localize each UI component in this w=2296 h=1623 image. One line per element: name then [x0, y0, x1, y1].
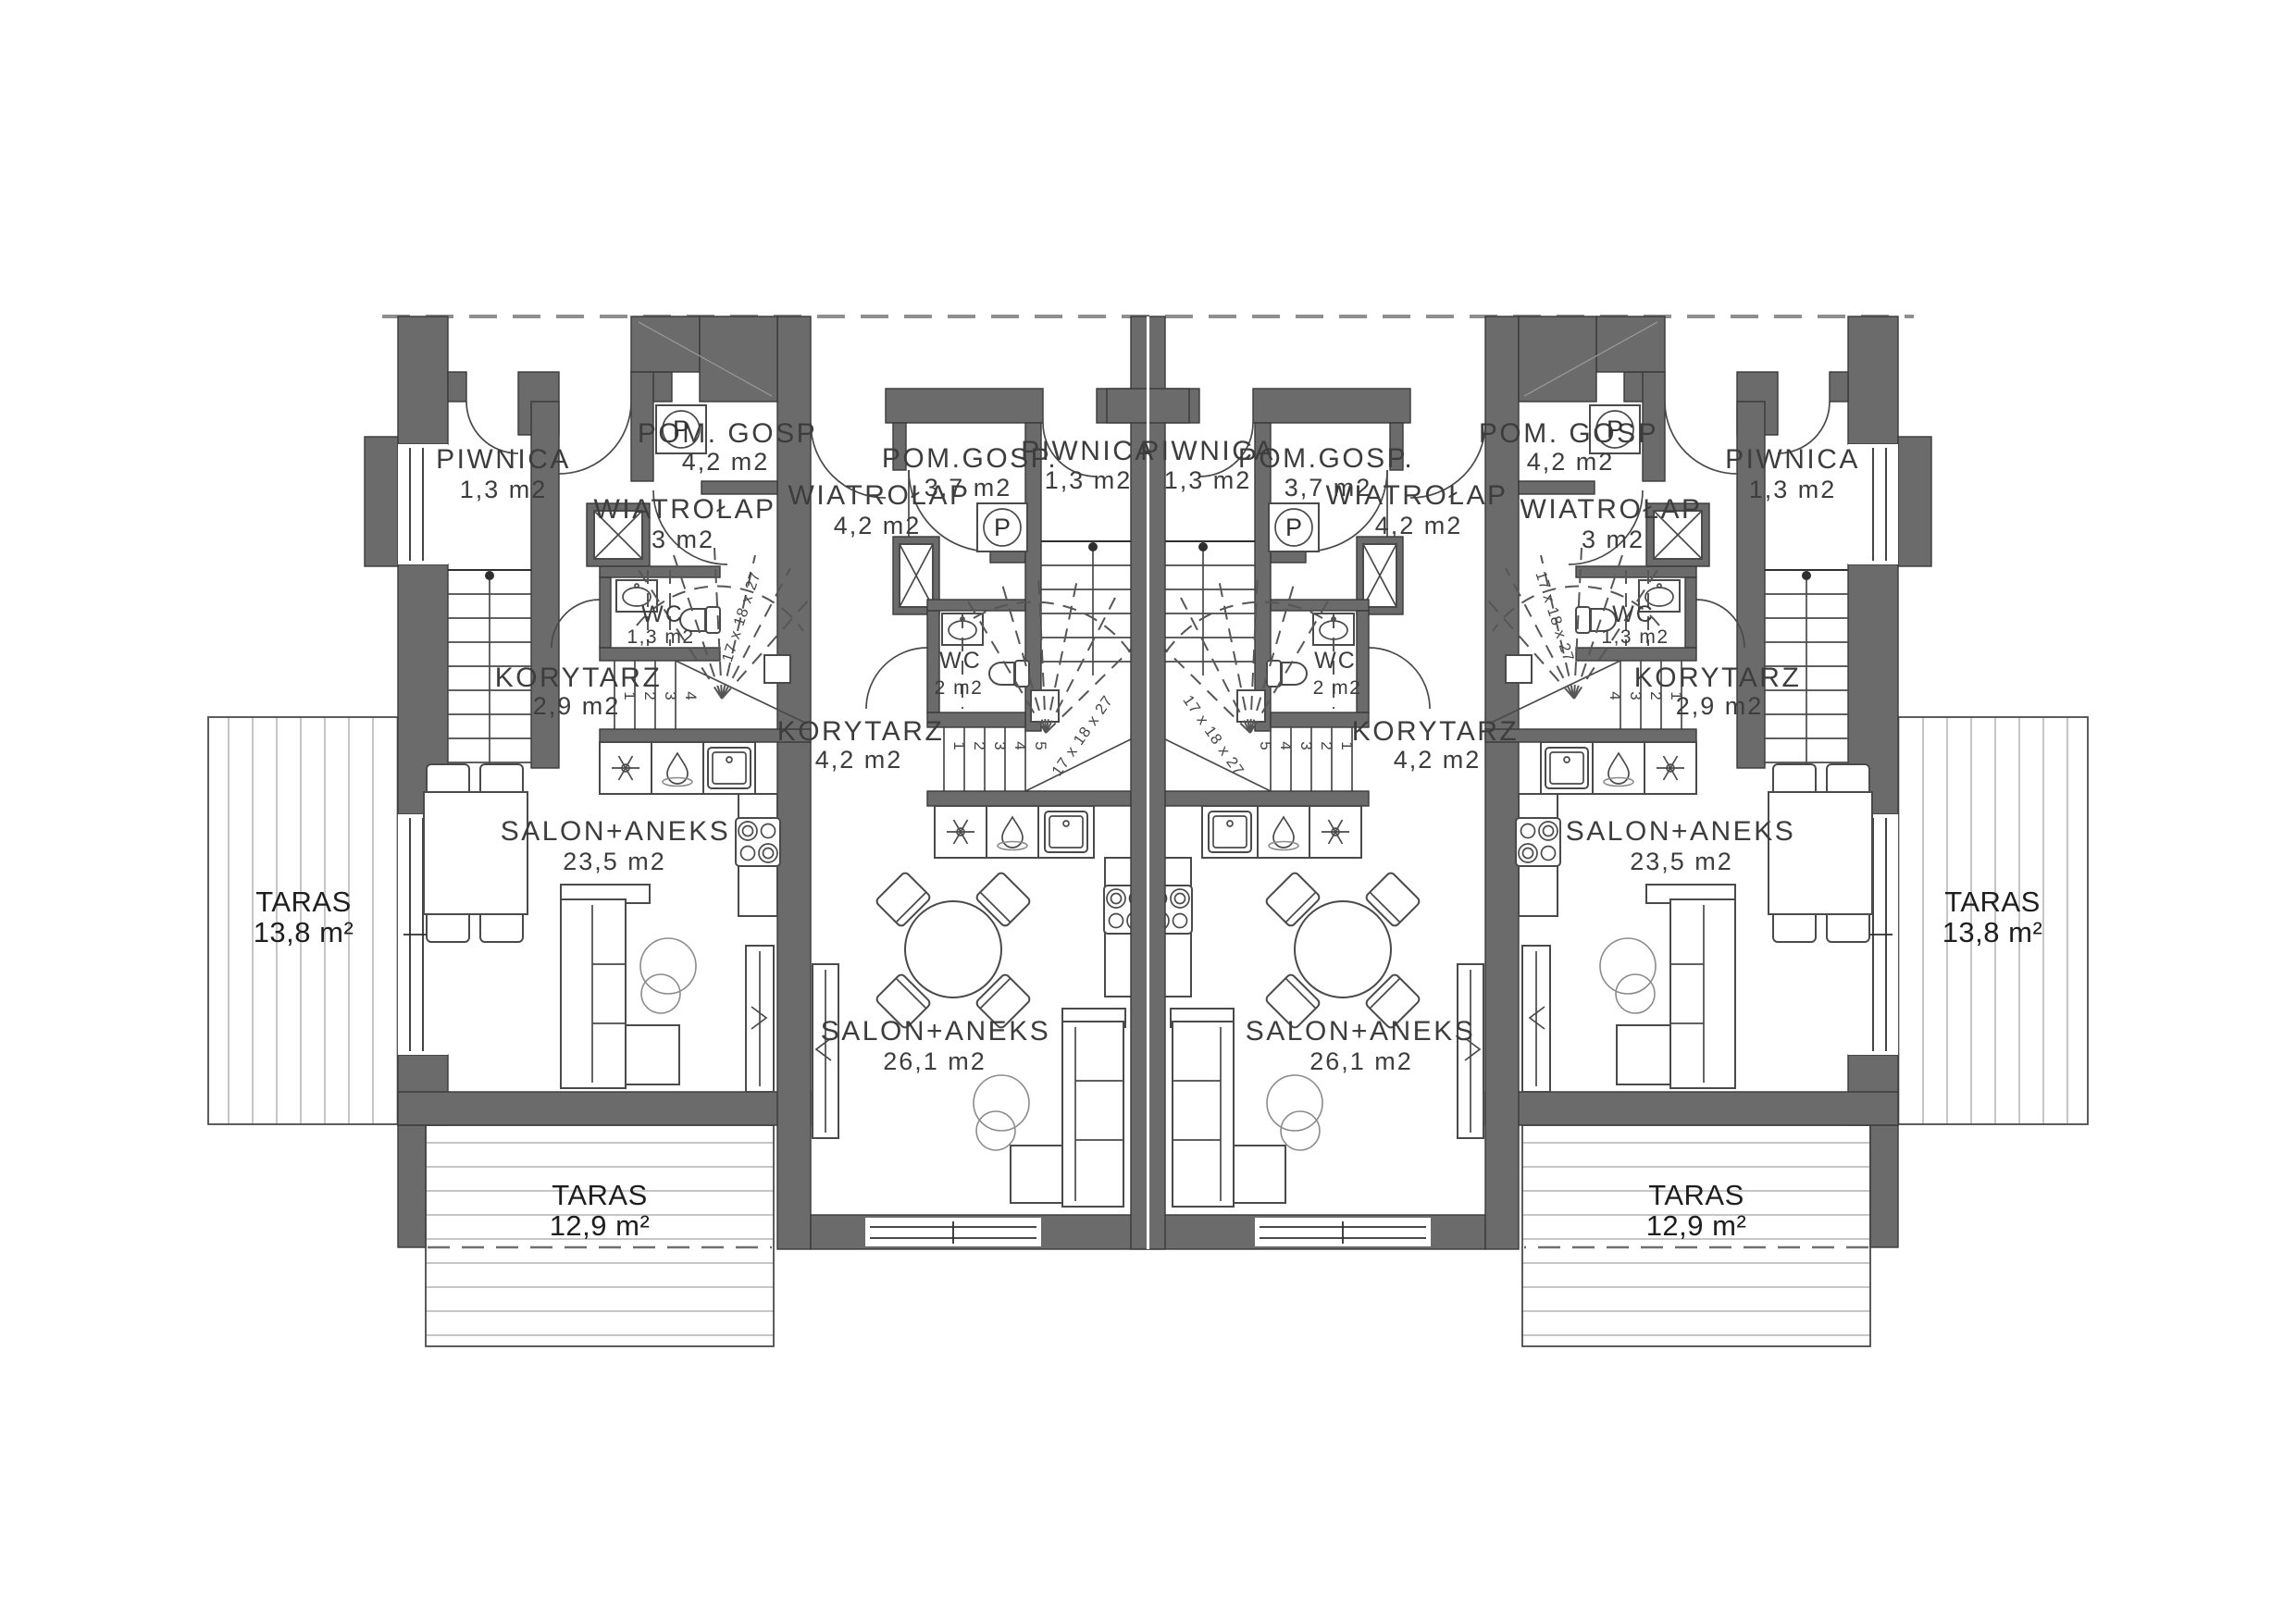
- u2-piwnica-area: 1,3 m2: [1045, 466, 1133, 494]
- u3-pomgosp-area: 3,7 m2: [1285, 474, 1372, 502]
- u2-piwnica-name: PIWNICA: [1021, 436, 1156, 466]
- u1-pomgosp-name: POM. GOSP: [638, 418, 817, 449]
- u4-step-1: 1: [1668, 691, 1685, 700]
- u4-wc-name: WC: [1612, 601, 1655, 627]
- u3-step-4: 4: [1277, 741, 1295, 750]
- u1-washer-label: P: [673, 415, 689, 443]
- u1-wiatrolap-name: WIATROŁAP: [594, 494, 776, 525]
- u1-salon-name: SALON+ANEKS: [501, 816, 730, 847]
- u4-wc-area: 1,3 m2: [1601, 626, 1669, 648]
- u2-wiatrolap-area: 4,2 m2: [834, 512, 922, 539]
- u1-korytarz-area: 2,9 m2: [533, 692, 621, 720]
- u3-step-5: 5: [1257, 741, 1274, 750]
- u2-step-4: 4: [1011, 741, 1029, 750]
- u3-step-1: 1: [1338, 741, 1356, 750]
- terrace-bottom-right-area: 12,9 m²: [1646, 1209, 1747, 1242]
- u2-step-2: 2: [971, 741, 988, 750]
- u4-korytarz-area: 2,9 m2: [1676, 692, 1764, 720]
- u1-wc-area: 1,3 m2: [627, 626, 694, 648]
- u1-step-3: 3: [662, 691, 679, 700]
- u2-salon-name: SALON+ANEKS: [821, 1016, 1050, 1047]
- u3-wc-area: 2 m2: [1313, 677, 1362, 699]
- terrace-left-area: 13,8 m²: [254, 916, 354, 948]
- u1-stair-note: 17 x 18 x 27: [719, 569, 764, 663]
- u4-salon-name: SALON+ANEKS: [1566, 816, 1795, 847]
- u2-step-3: 3: [991, 741, 1009, 750]
- u3-wc-name: WC: [1314, 648, 1357, 674]
- terrace-right-area: 13,8 m²: [1942, 916, 2043, 948]
- u3-step-2: 2: [1318, 741, 1335, 750]
- u2-wc-area: 2 m2: [935, 677, 984, 699]
- terrace-bottom-left-name: TARAS: [552, 1179, 648, 1211]
- u1-wc-name: WC: [641, 601, 684, 627]
- floor-plan: PIWNICA 1,3 m2 WIATROŁAP 3 m2 POM. GOSP …: [0, 0, 2296, 1623]
- u4-stair-note: 17 x 18 x 27: [1532, 569, 1577, 663]
- u4-wiatrolap-name: WIATROŁAP: [1520, 494, 1703, 525]
- u4-piwnica-name: PIWNICA: [1725, 444, 1860, 475]
- u3-washer-label: P: [1285, 514, 1302, 541]
- u1-wiatrolap-area: 3 m2: [652, 526, 714, 553]
- u2-wc-name: WC: [939, 648, 982, 674]
- u1-step-4: 4: [682, 691, 700, 700]
- u2-salon-area: 26,1 m2: [883, 1047, 987, 1075]
- u4-piwnica-area: 1,3 m2: [1749, 476, 1837, 503]
- u4-pomgosp-area: 4,2 m2: [1527, 448, 1615, 476]
- terrace-bottom-right-name: TARAS: [1648, 1179, 1744, 1211]
- terrace-right-name: TARAS: [1944, 886, 2041, 918]
- u4-salon-area: 23,5 m2: [1630, 848, 1733, 875]
- terrace-bottom-left-area: 12,9 m²: [550, 1209, 651, 1242]
- u1-piwnica-name: PIWNICA: [436, 444, 571, 475]
- u3-salon-area: 26,1 m2: [1309, 1047, 1413, 1075]
- u1-step-2: 2: [641, 691, 659, 700]
- u3-wiatrolap-area: 4,2 m2: [1375, 512, 1463, 539]
- u3-piwnica-name: PIWNICA: [1140, 436, 1275, 466]
- u2-korytarz-area: 4,2 m2: [815, 746, 903, 774]
- u1-pomgosp-area: 4,2 m2: [682, 448, 770, 476]
- u3-piwnica-area: 1,3 m2: [1164, 466, 1252, 494]
- floorplan-canvas: PIWNICA 1,3 m2 WIATROŁAP 3 m2 POM. GOSP …: [0, 0, 2296, 1623]
- u2-step-5: 5: [1032, 741, 1049, 750]
- u2-step-1: 1: [950, 741, 968, 750]
- u4-pomgosp-name: POM. GOSP: [1479, 418, 1658, 449]
- u3-korytarz-name: KORYTARZ: [1352, 716, 1520, 747]
- terrace-left-name: TARAS: [255, 886, 352, 918]
- u3-salon-name: SALON+ANEKS: [1246, 1016, 1475, 1047]
- u1-step-1: 1: [621, 691, 639, 700]
- u4-step-2: 2: [1647, 691, 1665, 700]
- u2-pomgosp-area: 3,7 m2: [925, 474, 1012, 502]
- u4-wiatrolap-area: 3 m2: [1582, 526, 1644, 553]
- u2-korytarz-name: KORYTARZ: [777, 716, 945, 747]
- u3-step-3: 3: [1297, 741, 1315, 750]
- u4-korytarz-name: KORYTARZ: [1634, 663, 1802, 693]
- u2-washer-label: P: [994, 514, 1011, 541]
- u3-korytarz-area: 4,2 m2: [1394, 746, 1482, 774]
- u4-step-3: 3: [1627, 691, 1644, 700]
- u1-piwnica-area: 1,3 m2: [460, 476, 548, 503]
- u4-washer-label: P: [1607, 415, 1623, 443]
- u1-korytarz-name: KORYTARZ: [495, 663, 663, 693]
- u1-salon-area: 23,5 m2: [563, 848, 666, 875]
- u4-step-4: 4: [1607, 691, 1624, 700]
